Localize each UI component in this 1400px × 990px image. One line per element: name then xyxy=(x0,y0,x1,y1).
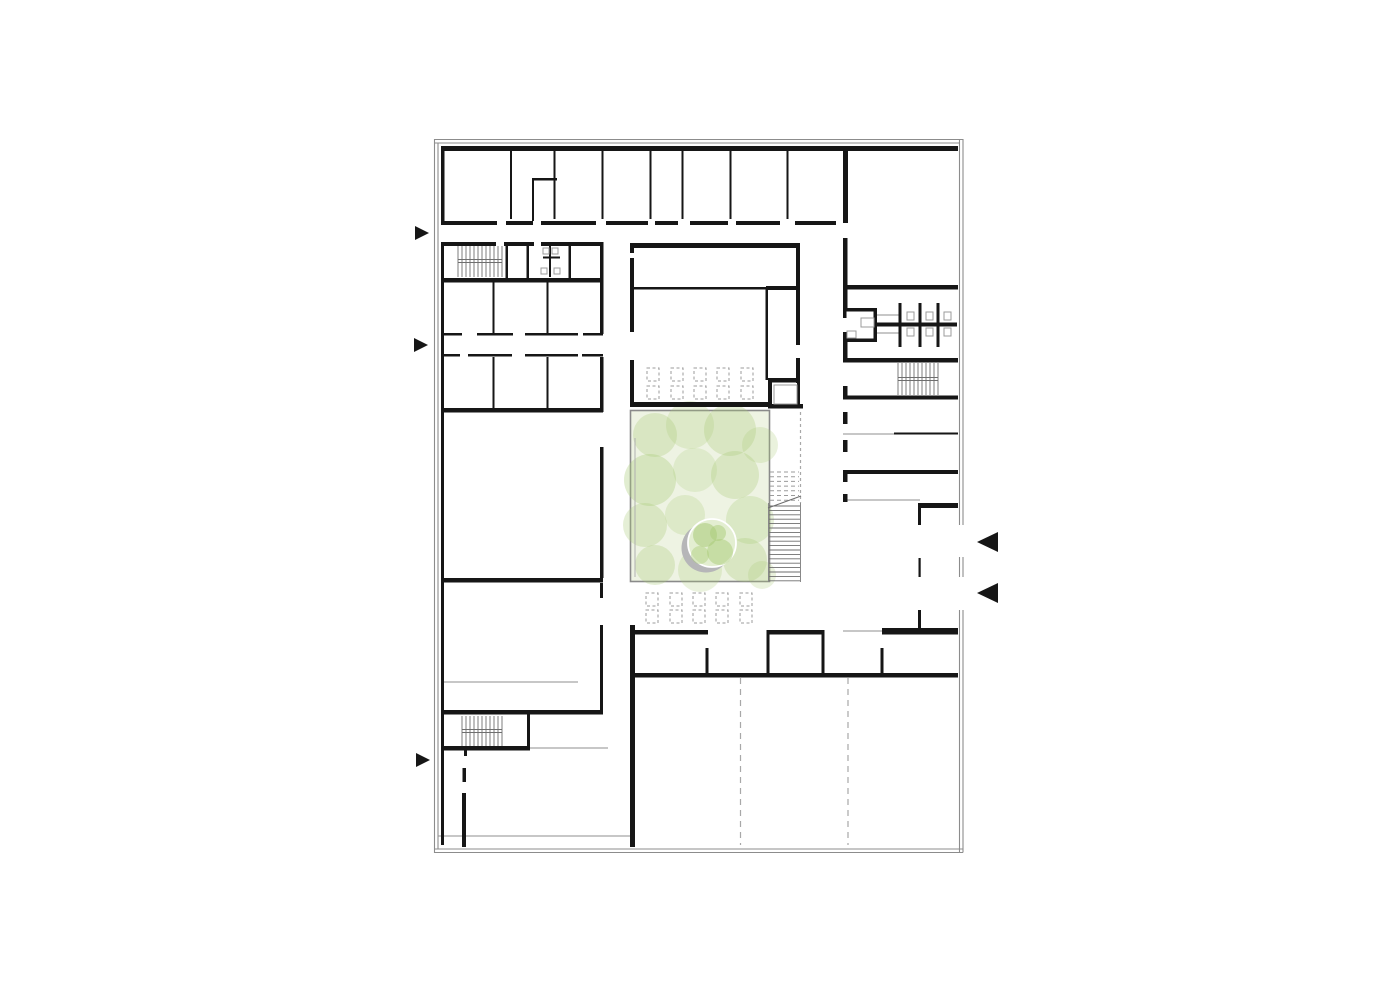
wall xyxy=(468,354,512,357)
wall xyxy=(822,630,825,677)
wall xyxy=(919,303,922,347)
wall xyxy=(602,151,604,219)
wall xyxy=(441,710,603,715)
wall xyxy=(441,746,530,751)
fixture xyxy=(926,328,933,336)
fixture xyxy=(541,268,547,274)
wall xyxy=(493,357,495,410)
wall xyxy=(630,243,800,248)
wall xyxy=(630,402,768,407)
fixture xyxy=(554,268,560,274)
wall xyxy=(843,494,848,502)
wall xyxy=(532,180,534,221)
wall xyxy=(937,303,940,347)
wall xyxy=(506,242,509,282)
courtyard-foliage-blob xyxy=(748,561,776,589)
wall xyxy=(787,151,789,219)
wall xyxy=(843,396,958,400)
wall xyxy=(843,470,958,474)
wall xyxy=(527,714,530,749)
wall xyxy=(541,242,603,246)
wall xyxy=(441,146,445,222)
wall xyxy=(541,221,596,225)
wall xyxy=(504,242,534,246)
wall xyxy=(506,221,533,225)
wall xyxy=(736,221,780,225)
wall xyxy=(525,333,578,336)
wall xyxy=(442,354,460,357)
wall xyxy=(843,412,848,424)
wall xyxy=(630,258,634,332)
wall xyxy=(882,628,958,634)
wall xyxy=(527,242,530,282)
wall xyxy=(919,558,921,577)
tree-foliage-blotch xyxy=(710,525,726,541)
courtyard-foliage-blob xyxy=(623,503,667,547)
wall xyxy=(843,358,958,363)
wall xyxy=(532,178,557,181)
wall xyxy=(477,333,513,336)
wall xyxy=(464,750,467,756)
wall xyxy=(706,648,709,677)
wall xyxy=(630,625,635,847)
wall xyxy=(768,404,803,409)
wall xyxy=(730,151,732,219)
wall xyxy=(442,333,462,336)
wall xyxy=(894,433,958,435)
courtyard-foliage-blob xyxy=(673,448,717,492)
fixture xyxy=(774,385,797,404)
courtyard-foliage-blob xyxy=(711,451,759,499)
fixture xyxy=(907,328,914,336)
wall xyxy=(569,242,572,282)
wall xyxy=(843,440,848,452)
fixture xyxy=(543,248,549,254)
courtyard-foliage-blob xyxy=(635,545,675,585)
wall xyxy=(525,354,578,357)
wall xyxy=(768,378,800,383)
wall xyxy=(655,221,678,225)
wall xyxy=(843,285,958,290)
wall xyxy=(682,151,684,219)
wall xyxy=(441,578,603,583)
wall xyxy=(918,508,921,525)
fixture xyxy=(907,312,914,320)
wall xyxy=(918,610,921,630)
wall xyxy=(899,303,902,347)
wall xyxy=(843,308,877,312)
wall xyxy=(600,625,603,712)
wall xyxy=(768,630,823,635)
wall xyxy=(766,286,800,290)
wall xyxy=(918,503,958,508)
wall xyxy=(600,242,604,334)
wall xyxy=(843,332,847,342)
courtyard-foliage-blob xyxy=(624,454,676,506)
wall xyxy=(547,357,549,410)
wall xyxy=(630,673,958,678)
fixture xyxy=(847,331,856,338)
wall xyxy=(630,360,634,407)
wall xyxy=(444,242,496,246)
wall xyxy=(462,793,466,847)
wall xyxy=(600,447,604,578)
fixture xyxy=(552,248,558,254)
wall xyxy=(554,151,556,219)
wall xyxy=(632,630,708,635)
wall xyxy=(877,323,957,327)
wall xyxy=(463,768,467,782)
wall xyxy=(796,243,800,345)
wall xyxy=(441,221,497,225)
wall xyxy=(766,288,769,380)
wall xyxy=(441,146,958,151)
wall xyxy=(881,648,884,677)
wall xyxy=(493,282,495,334)
wall xyxy=(543,257,560,259)
wall xyxy=(843,238,848,308)
wall xyxy=(843,308,847,318)
wall xyxy=(441,408,603,413)
floor-plan-svg xyxy=(0,0,1400,990)
tree-foliage-blotch xyxy=(691,546,709,564)
wall xyxy=(600,583,603,598)
wall xyxy=(767,630,770,677)
wall xyxy=(795,221,836,225)
tree-foliage-blotch xyxy=(707,539,733,565)
wall xyxy=(768,380,772,408)
fixture xyxy=(944,312,951,320)
fixture xyxy=(944,328,951,336)
wall xyxy=(650,151,652,219)
wall xyxy=(547,282,549,334)
wall xyxy=(630,287,768,290)
wall xyxy=(606,221,648,225)
fixture xyxy=(926,312,933,320)
fixture xyxy=(861,318,874,327)
page-background xyxy=(0,0,1400,990)
wall xyxy=(583,333,603,336)
wall xyxy=(843,146,848,223)
wall xyxy=(582,354,603,357)
wall xyxy=(600,357,604,412)
wall xyxy=(690,221,728,225)
wall xyxy=(510,151,512,219)
wall xyxy=(630,243,634,253)
wall xyxy=(441,242,444,845)
wall xyxy=(441,278,603,283)
wall xyxy=(843,339,877,343)
